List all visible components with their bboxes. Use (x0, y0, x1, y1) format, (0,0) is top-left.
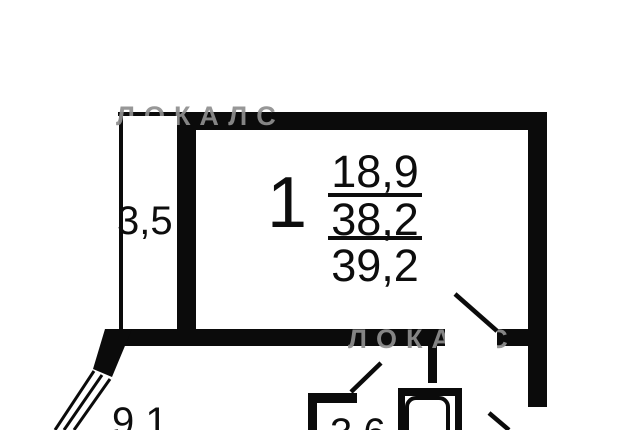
door-swings (0, 0, 640, 430)
wc-door-swing-icon (351, 363, 381, 392)
main-door-swing-icon (455, 294, 497, 331)
floor-plan: ЛОКАЛС ЛОКАЛС 3,5 1 18,9 38,2 39,2 9,1 3… (0, 0, 640, 430)
lower-door-swing-icon (489, 413, 509, 430)
